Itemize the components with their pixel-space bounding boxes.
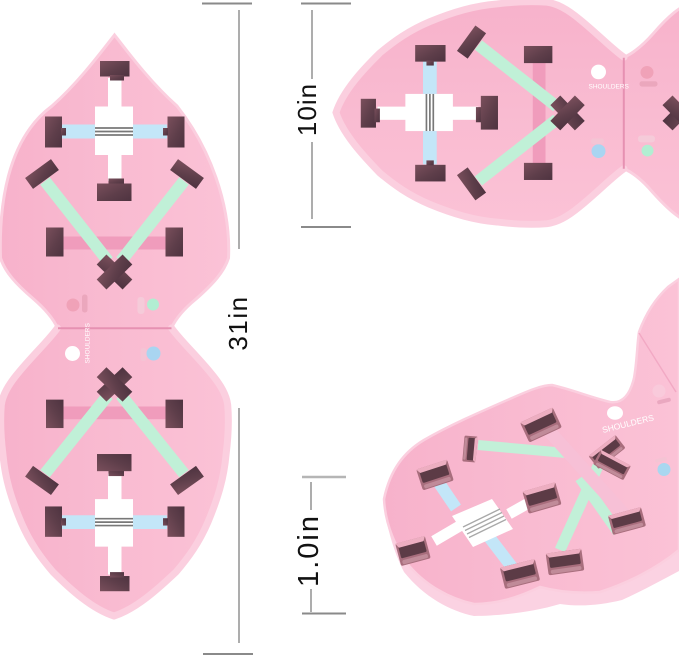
svg-text:1.0in: 1.0in [293,514,325,587]
svg-text:10in: 10in [292,83,322,136]
svg-text:31in: 31in [223,295,253,350]
